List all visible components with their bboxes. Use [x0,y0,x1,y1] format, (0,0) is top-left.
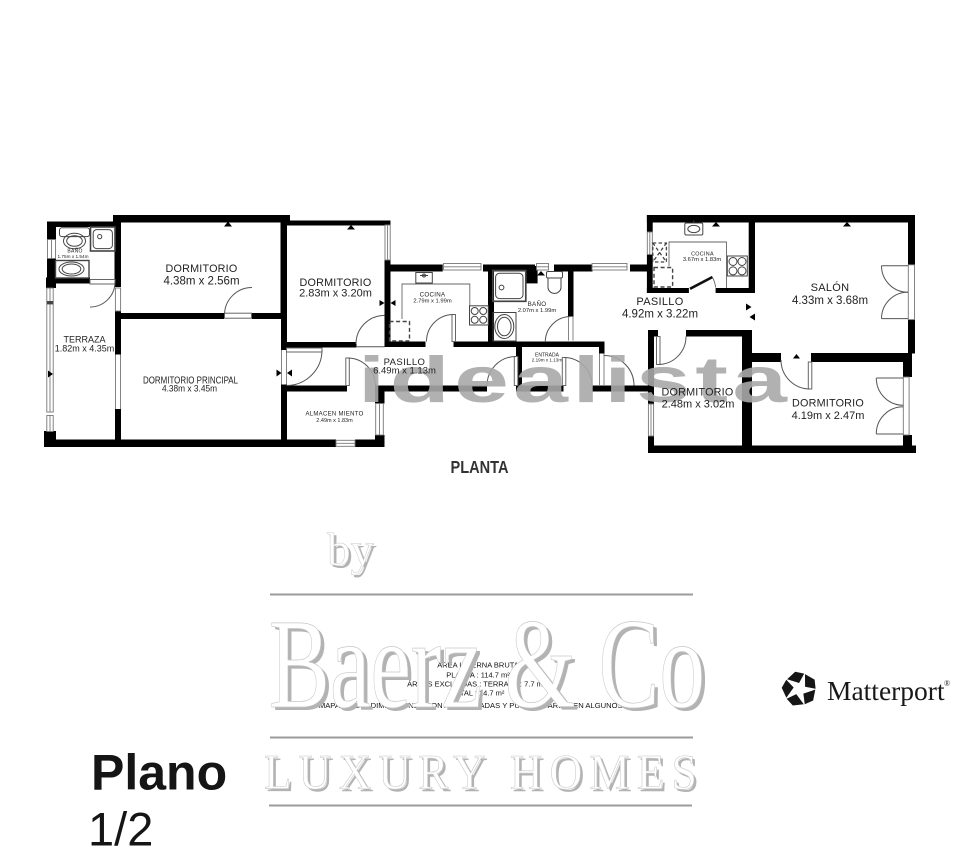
svg-text:4.19m x 2.47m: 4.19m x 2.47m [792,410,865,422]
svg-text:BAÑO: BAÑO [528,301,547,308]
svg-text:4.33m x 3.68m: 4.33m x 3.68m [792,295,868,307]
svg-text:Matterport: Matterport [827,675,945,706]
svg-text:2.19m x 1.13m: 2.19m x 1.13m [532,357,563,362]
svg-text:4.38m x 2.56m: 4.38m x 2.56m [163,276,239,288]
svg-text:®: ® [944,679,950,688]
svg-text:Baerz & Co: Baerz & Co [269,593,705,735]
svg-text:by: by [327,524,375,576]
svg-text:DORMITORIO: DORMITORIO [792,398,864,410]
svg-text:2.07m x 1.99m: 2.07m x 1.99m [518,308,557,314]
svg-text:PASILLO: PASILLO [636,296,683,308]
svg-text:2.79m x 1.99m: 2.79m x 1.99m [413,299,452,305]
svg-text:1.75m x 1.54m: 1.75m x 1.54m [57,254,88,259]
svg-text:3.67m x 1.83m: 3.67m x 1.83m [683,257,722,263]
svg-text:4.38m x 3.45m: 4.38m x 3.45m [162,384,217,395]
svg-text:PLANTA: PLANTA [451,457,509,477]
svg-text:LUXURY HOMES: LUXURY HOMES [264,744,704,800]
svg-text:2.83m x 3.20m: 2.83m x 3.20m [299,288,372,300]
svg-text:6.49m x 1.13m: 6.49m x 1.13m [373,366,436,377]
svg-text:COCINA: COCINA [420,292,446,299]
svg-text:4.92m x 3.22m: 4.92m x 3.22m [622,309,698,321]
svg-text:SALÓN: SALÓN [811,281,850,294]
svg-text:DORMITORIO: DORMITORIO [662,386,734,398]
svg-text:2.49m x 1.83m: 2.49m x 1.83m [316,418,353,424]
svg-text:ALMACEN MIENTO: ALMACEN MIENTO [305,412,363,418]
svg-text:1/2: 1/2 [88,803,153,848]
svg-text:Plano: Plano [91,745,227,801]
svg-text:DORMITORIO: DORMITORIO [166,263,238,275]
svg-text:2.48m x 3.02m: 2.48m x 3.02m [662,399,735,411]
svg-text:1.82m x 4.35m: 1.82m x 4.35m [55,344,115,354]
